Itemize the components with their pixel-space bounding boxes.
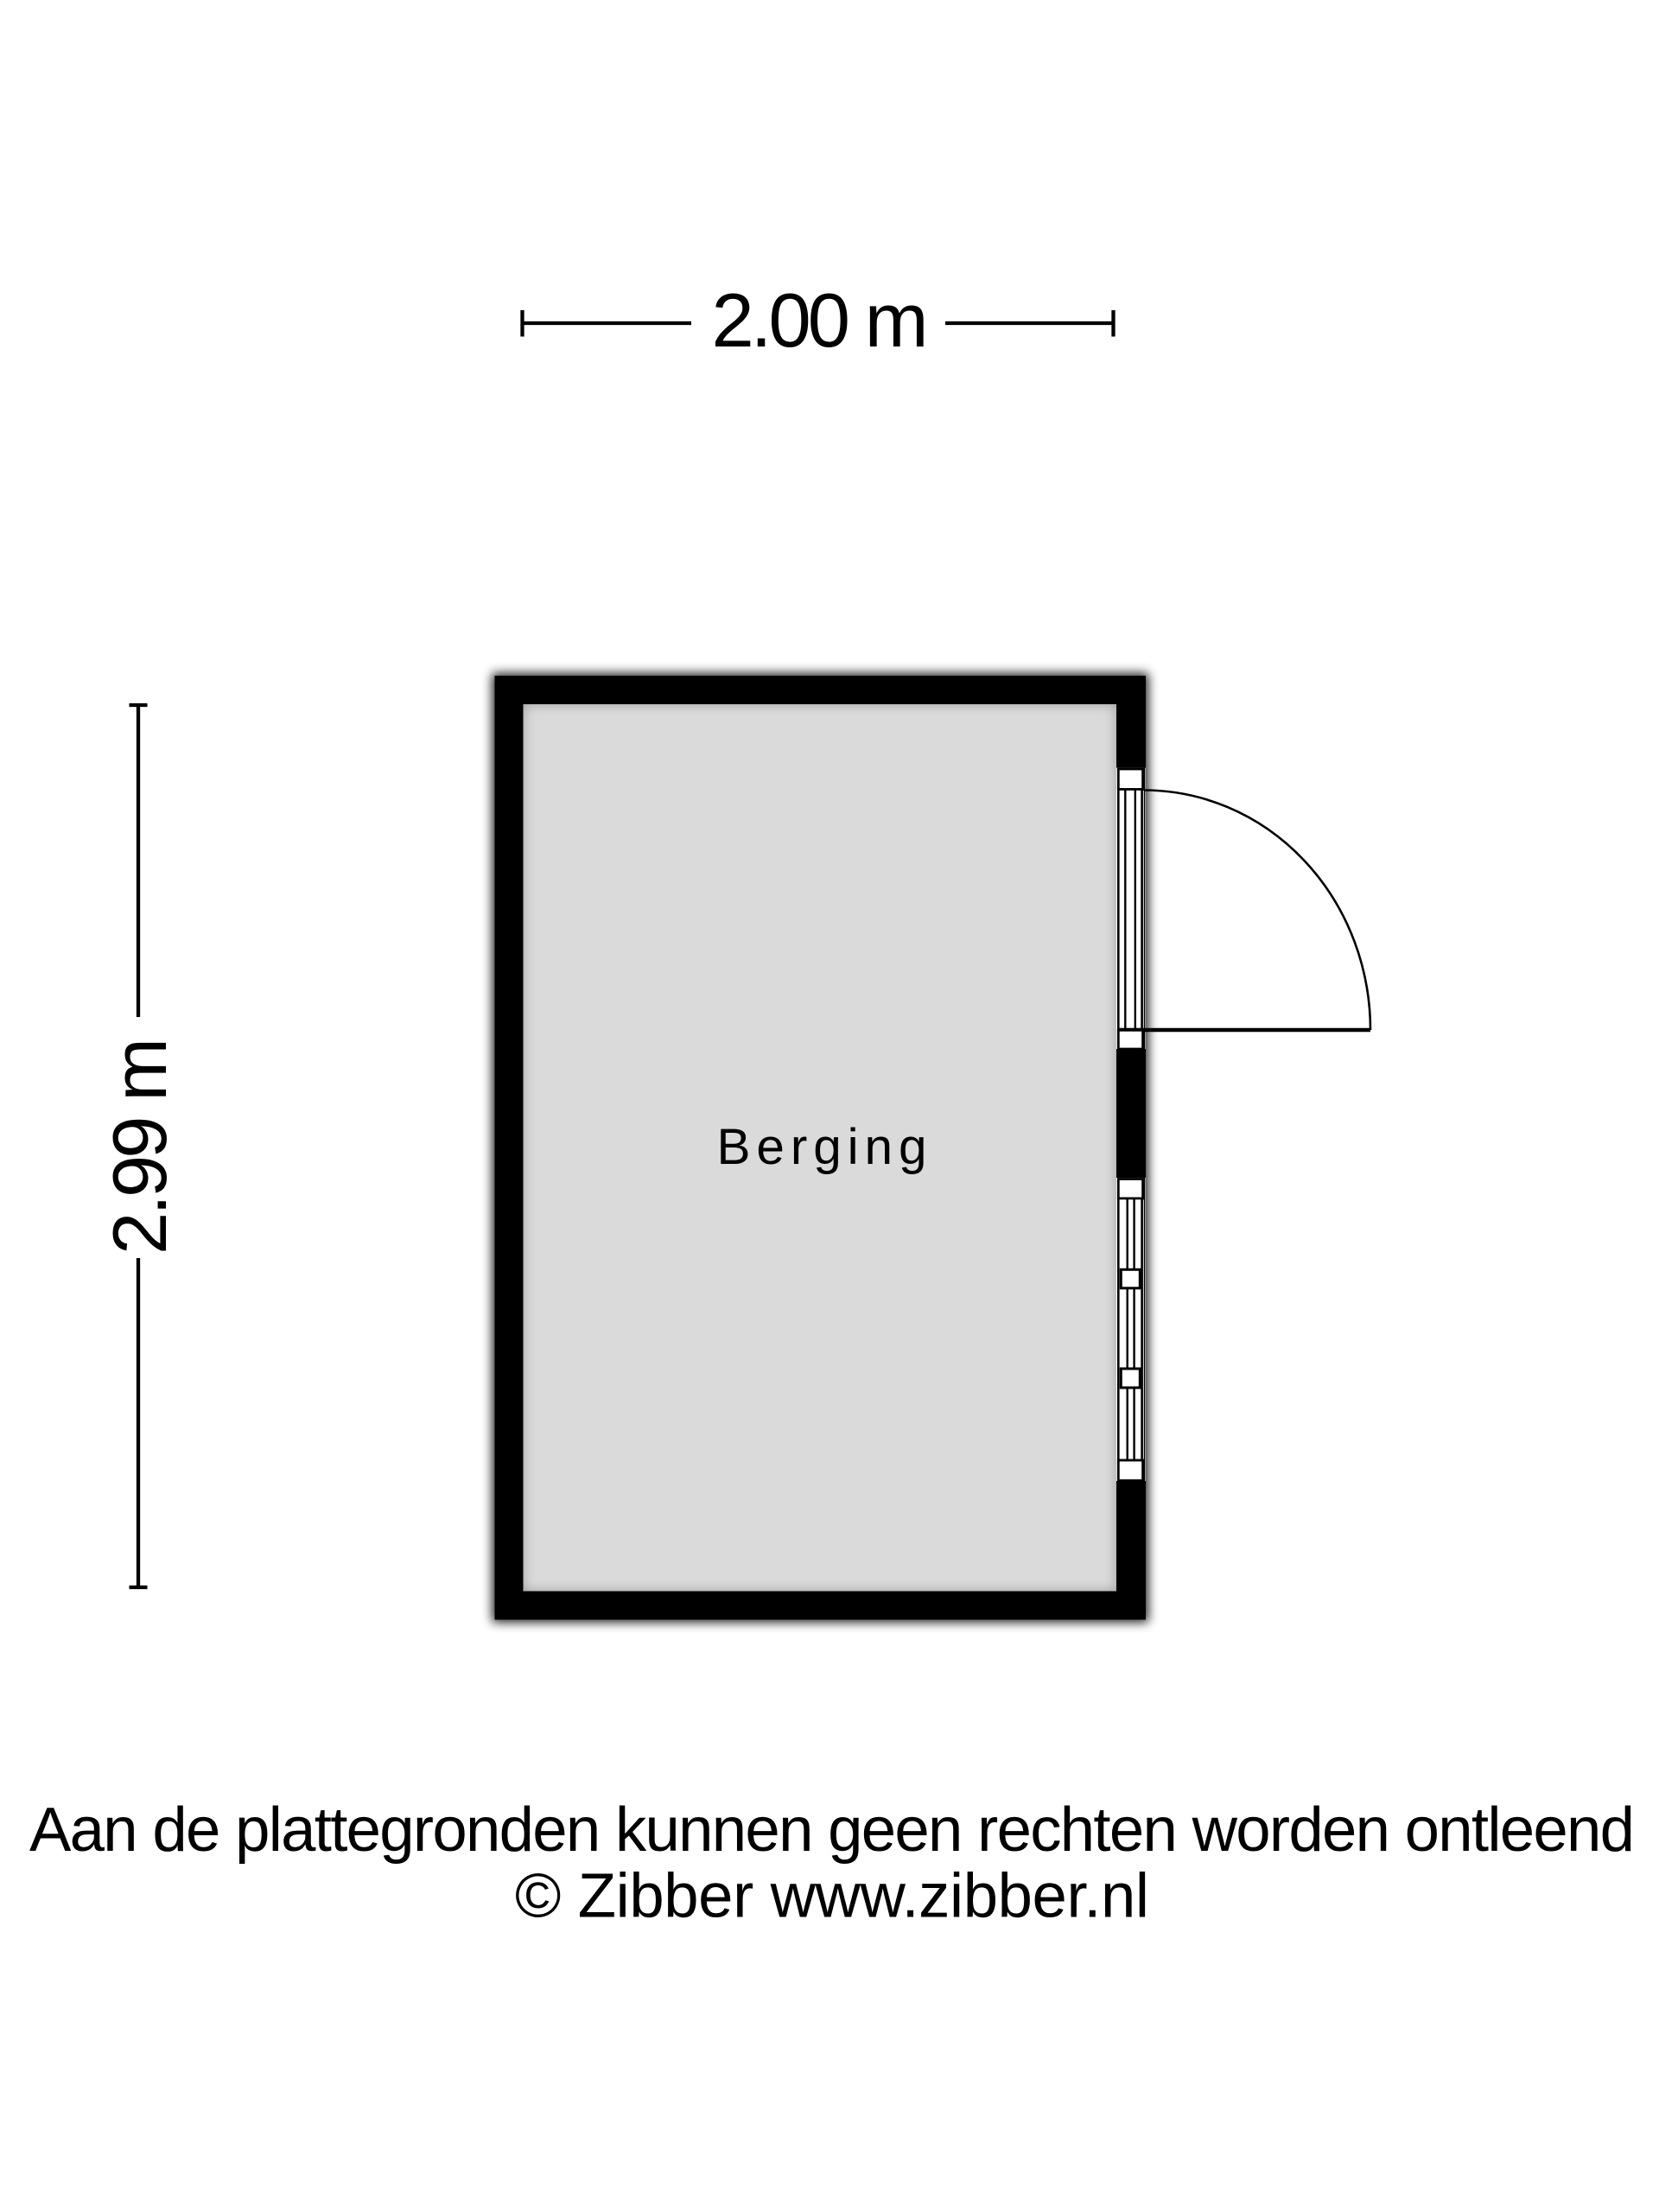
svg-text:Aan de plattegronden kunnen ge: Aan de plattegronden kunnen geen rechten…	[29, 1795, 1635, 1865]
svg-text:2.99 m: 2.99 m	[97, 1038, 182, 1255]
svg-text:© Zibber www.zibber.nl: © Zibber www.zibber.nl	[515, 1861, 1149, 1931]
svg-text:2.00 m: 2.00 m	[712, 277, 929, 363]
